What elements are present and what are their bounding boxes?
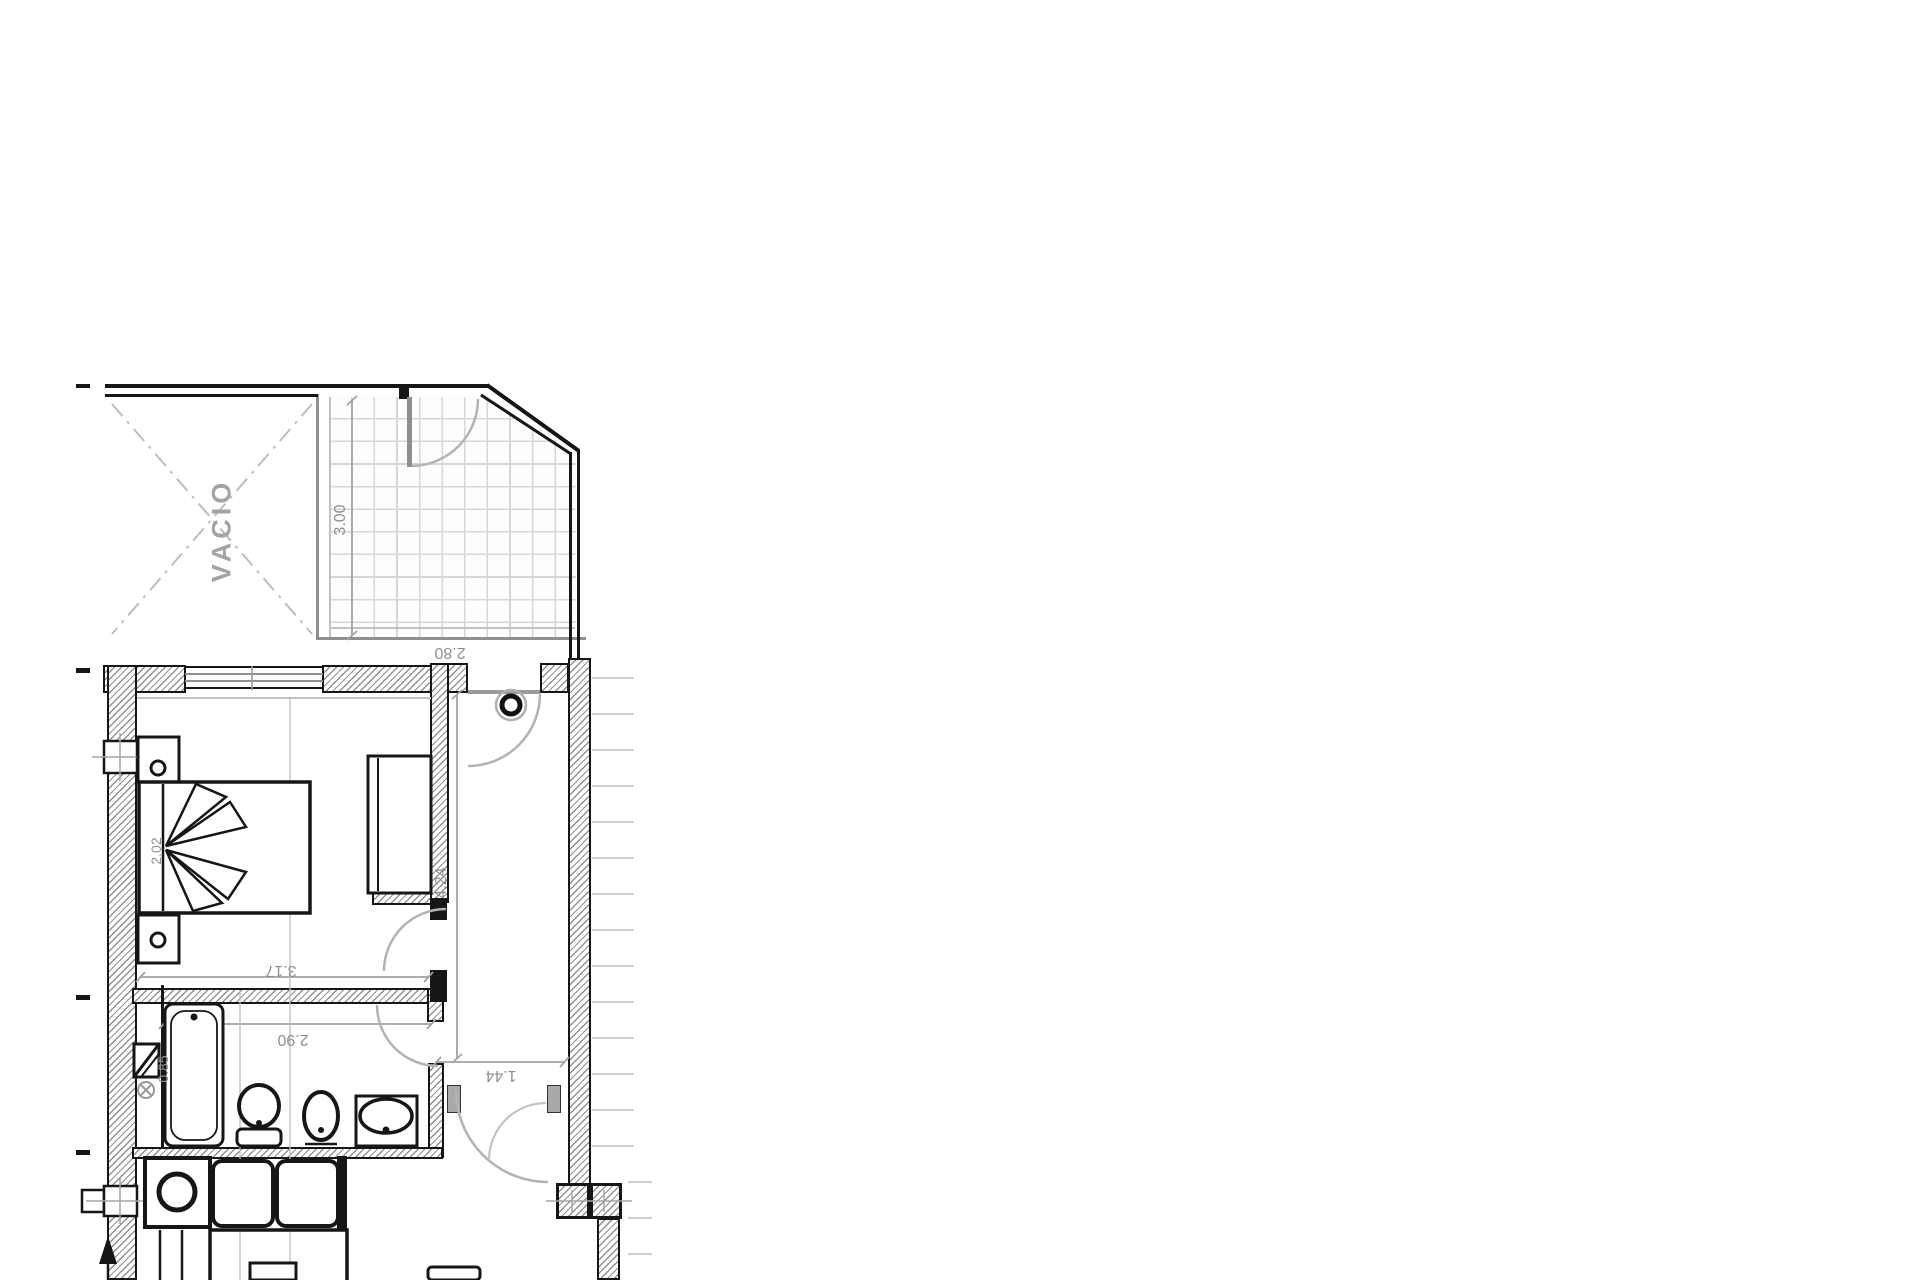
- bathtub: [165, 1004, 223, 1146]
- nightstand-bottom: [138, 915, 179, 963]
- toilet: [237, 1085, 281, 1146]
- column-crosshair: [546, 1190, 632, 1212]
- pier-crosshair-bottom: [82, 1178, 152, 1224]
- bidet: [304, 1092, 338, 1144]
- nightstand-top: [138, 737, 179, 782]
- dimension-lines: [136, 396, 569, 1067]
- terrace-diagonal-wall: [481, 385, 579, 454]
- dim-bedroom-width: 3.17: [241, 961, 321, 979]
- valve-symbol: [138, 1082, 154, 1098]
- plan-linework: [0, 0, 1920, 1280]
- section-arrow: [99, 1236, 117, 1280]
- dim-terrace-depth: 3.00: [332, 480, 350, 560]
- void-area-label: VACIO: [207, 471, 238, 591]
- dim-bathroom-width: 2.90: [253, 1030, 333, 1048]
- tv-bench: [428, 1267, 480, 1280]
- bathroom-door-arc: [377, 1005, 438, 1066]
- floor-plan-canvas: VACIO 3.00 2.80 3.17 2.02 4.24 2.90 1.44…: [0, 0, 1920, 1280]
- dim-corridor-width: 1.44: [461, 1066, 541, 1084]
- side-table: [145, 1158, 210, 1227]
- terrace-door-arc: [412, 399, 478, 466]
- dim-hall-length: 4.24: [433, 843, 451, 923]
- stair-treads: [592, 678, 652, 1254]
- drain-symbol: [496, 690, 526, 720]
- dim-terrace-width: 2.80: [410, 643, 490, 661]
- dim-bed-length: 2.02: [147, 811, 165, 891]
- sink-vanity: [356, 1096, 417, 1146]
- dim-bath-fixture: 0.85: [154, 1029, 172, 1109]
- corridor-door-arc-2: [489, 1103, 546, 1160]
- wardrobe: [368, 756, 431, 893]
